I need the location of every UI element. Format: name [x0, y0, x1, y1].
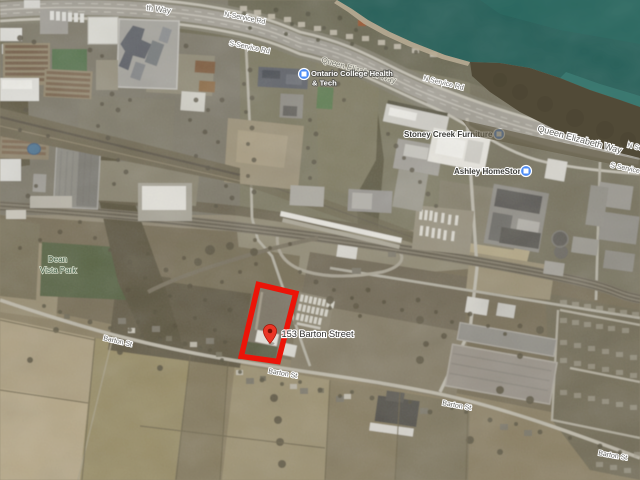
svg-text:Vista Park: Vista Park [40, 266, 77, 275]
svg-text:153 Barton Street: 153 Barton Street [282, 329, 354, 339]
svg-text:Ontario College Health: Ontario College Health [311, 69, 393, 78]
svg-text:Ashley HomeStore: Ashley HomeStore [454, 167, 526, 176]
svg-text:& Tech: & Tech [312, 79, 337, 88]
svg-text:Dean: Dean [48, 255, 67, 264]
